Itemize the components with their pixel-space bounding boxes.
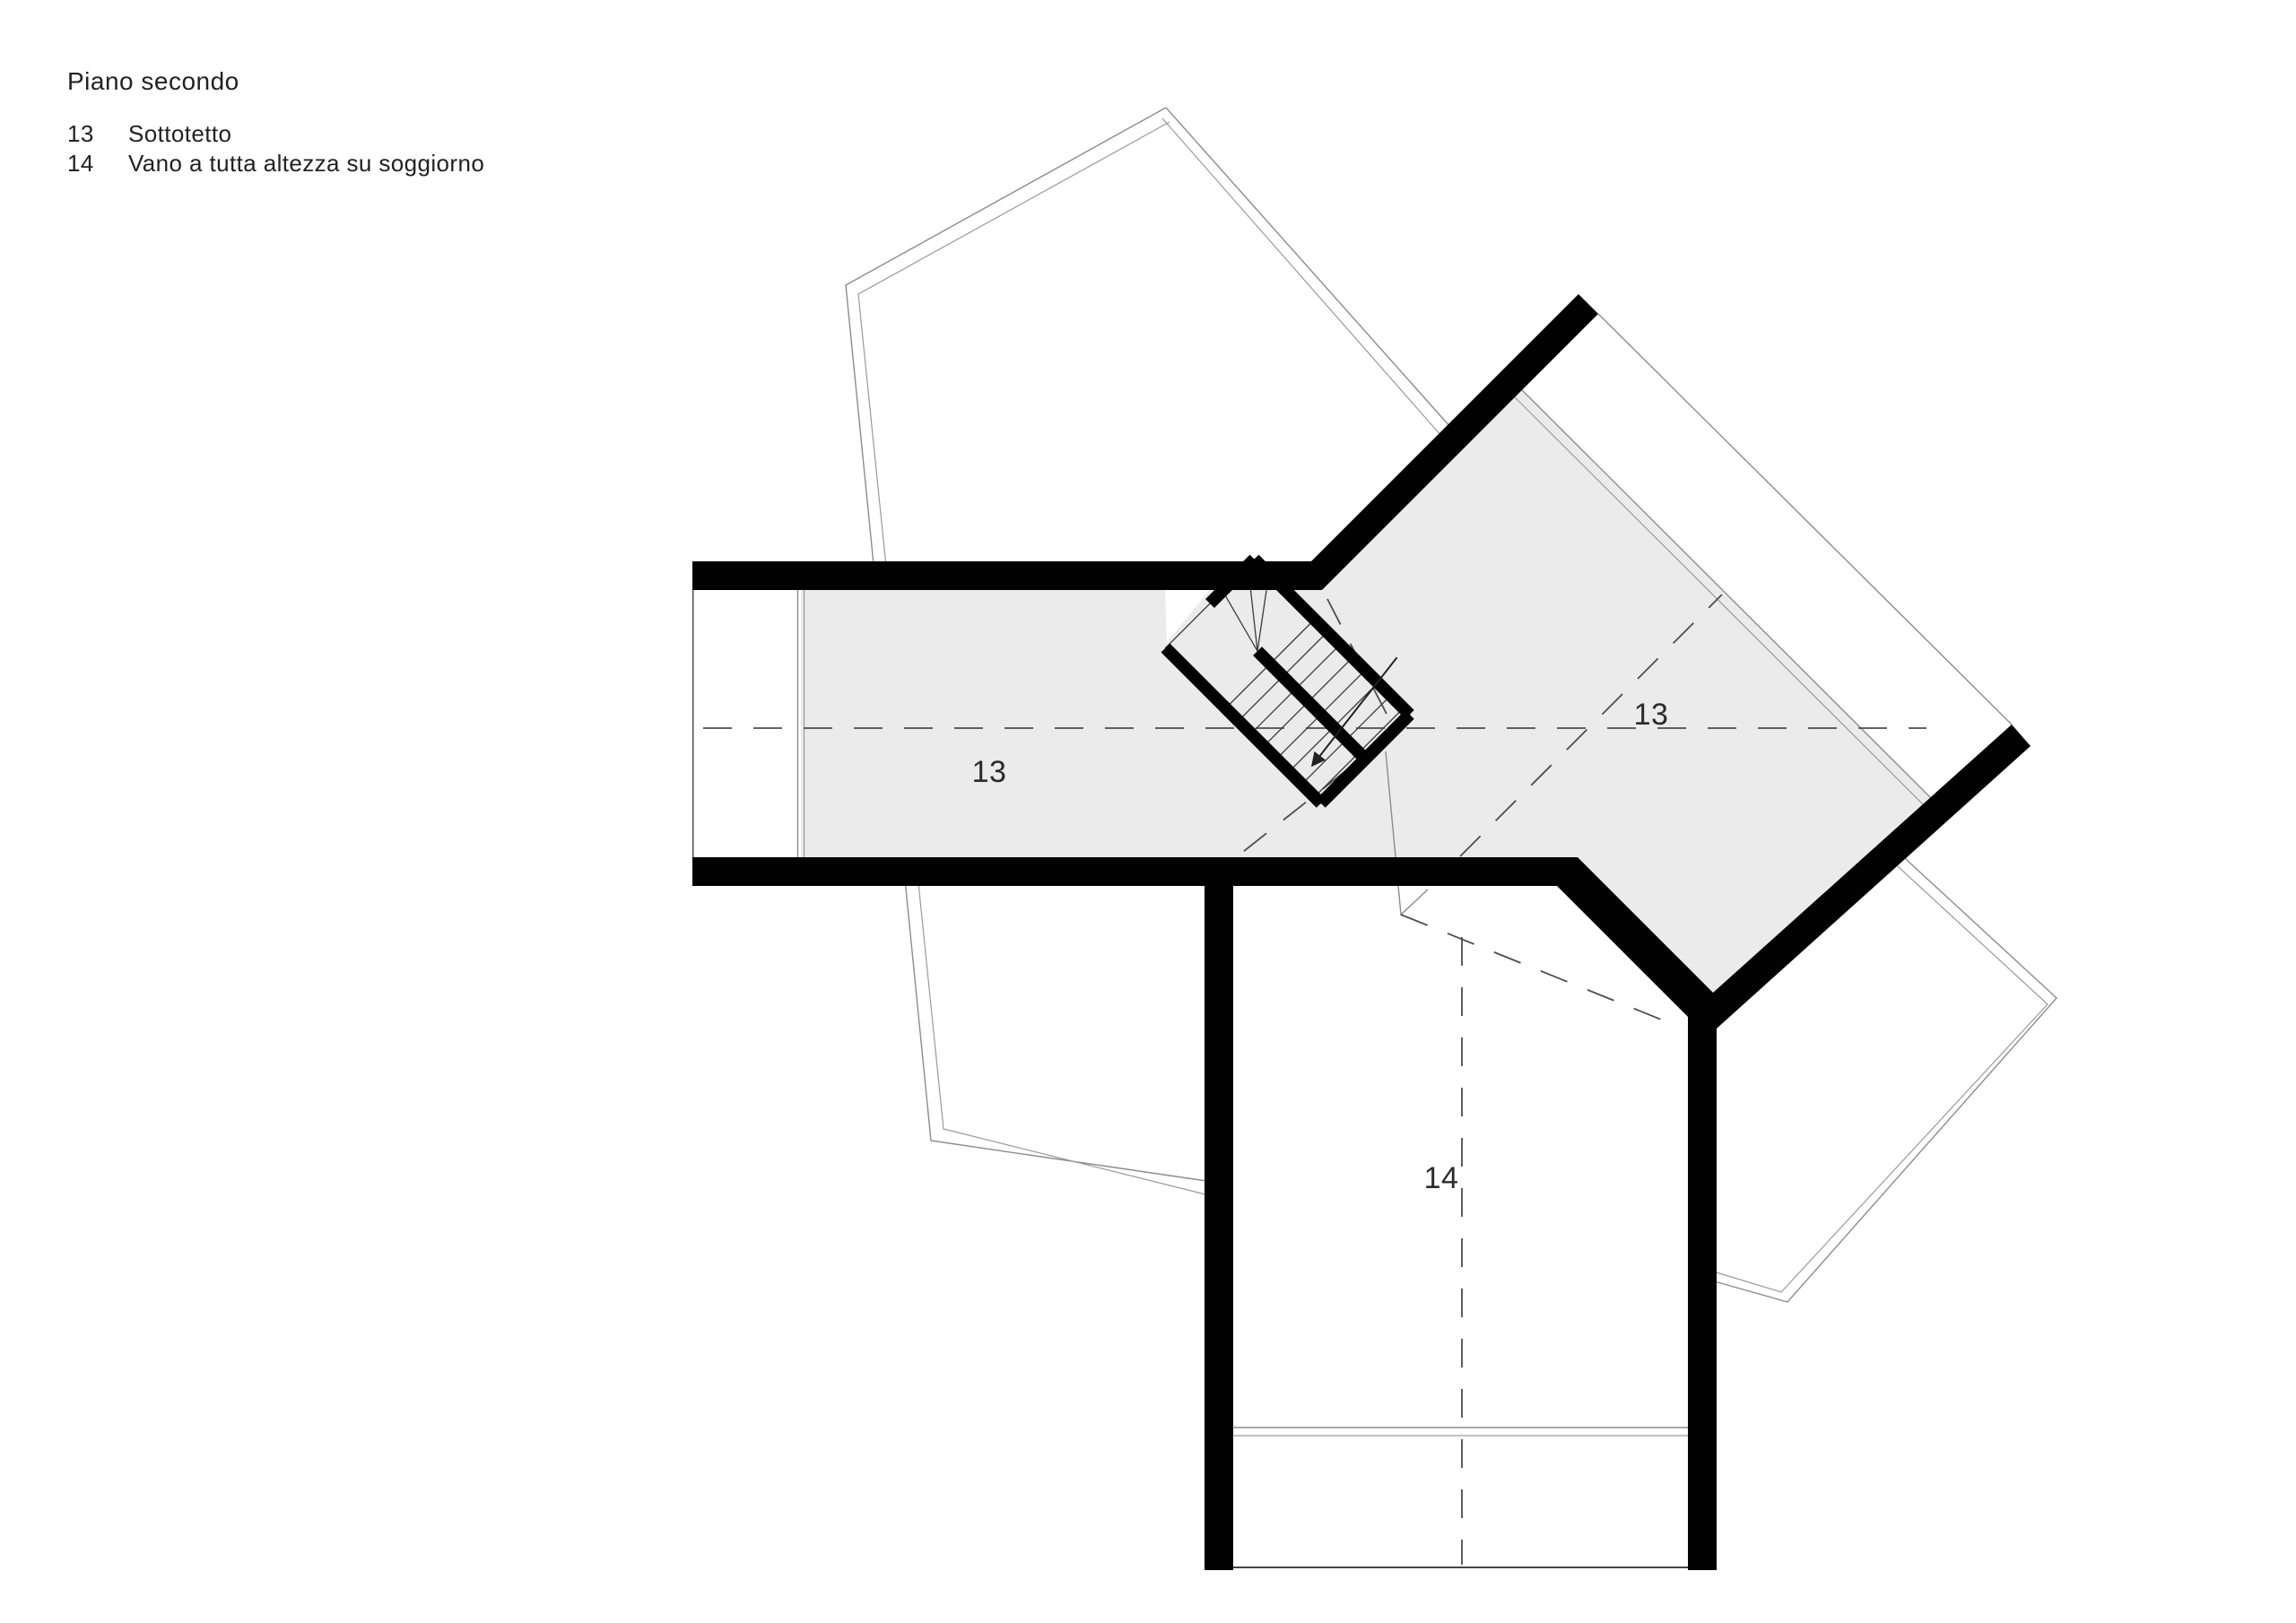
room-label-13-band: 13 bbox=[1634, 698, 1669, 732]
legend: 13 Sottotetto 14 Vano a tutta altezza su… bbox=[67, 120, 484, 177]
legend-number-13: 13 bbox=[67, 120, 94, 147]
wall-room14-left bbox=[1205, 886, 1233, 1570]
room-label-14: 14 bbox=[1424, 1161, 1459, 1195]
roof-outline-left-topedge-inner bbox=[1162, 118, 1448, 443]
floor-plan: Piano secondo 13 Sottotetto 14 Vano a tu… bbox=[0, 0, 2296, 1623]
legend-number-14: 14 bbox=[67, 150, 94, 177]
walls bbox=[692, 294, 2031, 1570]
roof-outline-left-topedge-outer bbox=[1166, 108, 1457, 435]
page-title: Piano secondo bbox=[67, 67, 239, 95]
room-label-13-corridor: 13 bbox=[972, 755, 1007, 789]
legend-label-13: Sottotetto bbox=[128, 120, 231, 147]
attic-floor-area bbox=[801, 390, 1931, 993]
void-room-lines bbox=[1233, 1428, 1688, 1567]
legend-label-14: Vano a tutta altezza su soggiorno bbox=[128, 150, 484, 177]
